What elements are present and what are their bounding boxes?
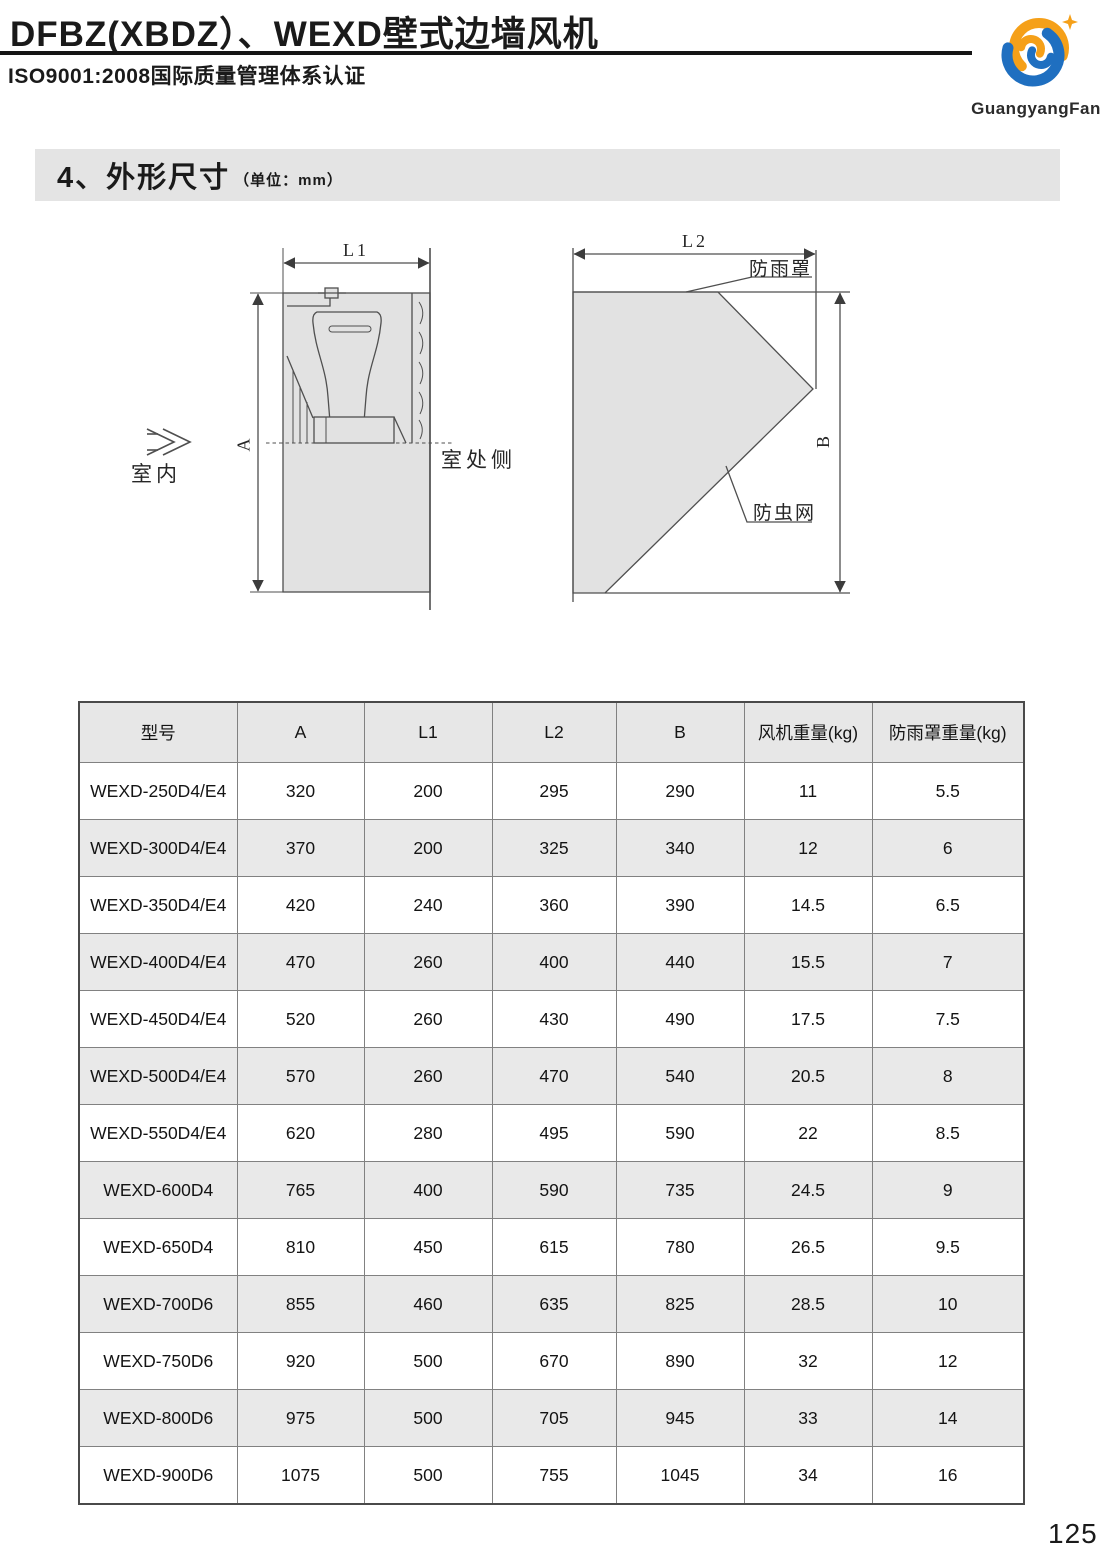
table-row: WEXD-900D6107550075510453416 [79, 1447, 1024, 1505]
value-cell: 7 [872, 934, 1024, 991]
value-cell: 22 [744, 1105, 872, 1162]
value-cell: 14.5 [744, 877, 872, 934]
model-cell: WEXD-300D4/E4 [79, 820, 237, 877]
value-cell: 590 [616, 1105, 744, 1162]
table-row: WEXD-550D4/E4620280495590228.5 [79, 1105, 1024, 1162]
value-cell: 10 [872, 1276, 1024, 1333]
value-cell: 400 [364, 1162, 492, 1219]
value-cell: 520 [237, 991, 364, 1048]
value-cell: 320 [237, 763, 364, 820]
value-cell: 735 [616, 1162, 744, 1219]
model-cell: WEXD-750D6 [79, 1333, 237, 1390]
table-row: WEXD-600D476540059073524.59 [79, 1162, 1024, 1219]
table-row: WEXD-250D4/E4320200295290115.5 [79, 763, 1024, 820]
model-cell: WEXD-500D4/E4 [79, 1048, 237, 1105]
value-cell: 17.5 [744, 991, 872, 1048]
value-cell: 26.5 [744, 1219, 872, 1276]
model-cell: WEXD-800D6 [79, 1390, 237, 1447]
value-cell: 240 [364, 877, 492, 934]
value-cell: 8.5 [872, 1105, 1024, 1162]
value-cell: 260 [364, 991, 492, 1048]
value-cell: 780 [616, 1219, 744, 1276]
value-cell: 705 [492, 1390, 616, 1447]
table-row: WEXD-700D685546063582528.510 [79, 1276, 1024, 1333]
value-cell: 34 [744, 1447, 872, 1505]
value-cell: 495 [492, 1105, 616, 1162]
value-cell: 460 [364, 1276, 492, 1333]
value-cell: 32 [744, 1333, 872, 1390]
value-cell: 260 [364, 1048, 492, 1105]
value-cell: 340 [616, 820, 744, 877]
value-cell: 570 [237, 1048, 364, 1105]
dimension-drawings [0, 220, 1119, 660]
model-cell: WEXD-350D4/E4 [79, 877, 237, 934]
catalog-page: DFBZ(XBDZ）、WEXD壁式边墙风机 ISO9001:2008国际质量管理… [0, 0, 1119, 1564]
value-cell: 670 [492, 1333, 616, 1390]
table-row: WEXD-300D4/E4370200325340126 [79, 820, 1024, 877]
col-header-cover-weight: 防雨罩重量(kg) [872, 702, 1024, 763]
col-header-fan-weight: 风机重量(kg) [744, 702, 872, 763]
col-header-a: A [237, 702, 364, 763]
model-cell: WEXD-900D6 [79, 1447, 237, 1505]
model-cell: WEXD-250D4/E4 [79, 763, 237, 820]
logo-star-icon [1062, 14, 1078, 30]
value-cell: 200 [364, 820, 492, 877]
section-unit-note: （单位：mm） [234, 169, 343, 190]
value-cell: 360 [492, 877, 616, 934]
table-row: WEXD-800D69755007059453314 [79, 1390, 1024, 1447]
airflow-arrow-icon [147, 429, 190, 455]
model-cell: WEXD-600D4 [79, 1162, 237, 1219]
dim-label-l2: L2 [665, 231, 725, 252]
value-cell: 500 [364, 1333, 492, 1390]
value-cell: 420 [237, 877, 364, 934]
value-cell: 28.5 [744, 1276, 872, 1333]
section-header-bar: 4、外形尺寸 （单位：mm） [35, 149, 1060, 201]
value-cell: 200 [364, 763, 492, 820]
dim-label-b: B [813, 433, 834, 448]
company-logo: GuangyangFan [958, 10, 1114, 119]
table-row: WEXD-450D4/E452026043049017.57.5 [79, 991, 1024, 1048]
page-number: 125 [1048, 1518, 1098, 1550]
rain-cover-label: 防雨罩 [749, 254, 812, 281]
value-cell: 755 [492, 1447, 616, 1505]
page-title: DFBZ(XBDZ）、WEXD壁式边墙风机 [10, 6, 599, 57]
value-cell: 24.5 [744, 1162, 872, 1219]
value-cell: 825 [616, 1276, 744, 1333]
value-cell: 8 [872, 1048, 1024, 1105]
value-cell: 15.5 [744, 934, 872, 991]
value-cell: 325 [492, 820, 616, 877]
value-cell: 20.5 [744, 1048, 872, 1105]
value-cell: 12 [744, 820, 872, 877]
front-view-drawing [573, 248, 850, 602]
table-row: WEXD-650D481045061578026.59.5 [79, 1219, 1024, 1276]
logo-swirl-icon [992, 10, 1080, 96]
value-cell: 33 [744, 1390, 872, 1447]
value-cell: 855 [237, 1276, 364, 1333]
value-cell: 890 [616, 1333, 744, 1390]
model-cell: WEXD-650D4 [79, 1219, 237, 1276]
iso-certification-text: ISO9001:2008国际质量管理体系认证 [8, 60, 366, 90]
dimension-spec-table: 型号 A L1 L2 B 风机重量(kg) 防雨罩重量(kg) WEXD-250… [78, 701, 1025, 1505]
value-cell: 6.5 [872, 877, 1024, 934]
value-cell: 280 [364, 1105, 492, 1162]
insect-net-label: 防虫网 [753, 498, 816, 525]
value-cell: 470 [237, 934, 364, 991]
value-cell: 635 [492, 1276, 616, 1333]
value-cell: 615 [492, 1219, 616, 1276]
logo-text: GuangyangFan [958, 99, 1114, 119]
model-cell: WEXD-700D6 [79, 1276, 237, 1333]
value-cell: 1045 [616, 1447, 744, 1505]
model-cell: WEXD-550D4/E4 [79, 1105, 237, 1162]
value-cell: 11 [744, 763, 872, 820]
value-cell: 540 [616, 1048, 744, 1105]
col-header-l2: L2 [492, 702, 616, 763]
table-body: WEXD-250D4/E4320200295290115.5WEXD-300D4… [79, 763, 1024, 1505]
dim-label-a: A [234, 436, 255, 452]
table-row: WEXD-400D4/E447026040044015.57 [79, 934, 1024, 991]
value-cell: 470 [492, 1048, 616, 1105]
table-row: WEXD-750D69205006708903212 [79, 1333, 1024, 1390]
value-cell: 810 [237, 1219, 364, 1276]
outdoor-side-label: 室处侧 [441, 444, 516, 474]
value-cell: 12 [872, 1333, 1024, 1390]
value-cell: 6 [872, 820, 1024, 877]
section-title: 4、外形尺寸 [57, 154, 230, 196]
value-cell: 920 [237, 1333, 364, 1390]
model-cell: WEXD-400D4/E4 [79, 934, 237, 991]
value-cell: 9.5 [872, 1219, 1024, 1276]
indoor-label: 室内 [131, 458, 181, 488]
value-cell: 765 [237, 1162, 364, 1219]
value-cell: 7.5 [872, 991, 1024, 1048]
value-cell: 490 [616, 991, 744, 1048]
model-cell: WEXD-450D4/E4 [79, 991, 237, 1048]
value-cell: 14 [872, 1390, 1024, 1447]
table-row: WEXD-350D4/E442024036039014.56.5 [79, 877, 1024, 934]
value-cell: 5.5 [872, 763, 1024, 820]
value-cell: 400 [492, 934, 616, 991]
value-cell: 975 [237, 1390, 364, 1447]
value-cell: 450 [364, 1219, 492, 1276]
value-cell: 430 [492, 991, 616, 1048]
table-header-row: 型号 A L1 L2 B 风机重量(kg) 防雨罩重量(kg) [79, 702, 1024, 763]
value-cell: 1075 [237, 1447, 364, 1505]
value-cell: 290 [616, 763, 744, 820]
value-cell: 590 [492, 1162, 616, 1219]
value-cell: 16 [872, 1447, 1024, 1505]
table-row: WEXD-500D4/E457026047054020.58 [79, 1048, 1024, 1105]
col-header-l1: L1 [364, 702, 492, 763]
col-header-b: B [616, 702, 744, 763]
value-cell: 370 [237, 820, 364, 877]
dim-label-l1: L1 [331, 240, 381, 261]
col-header-model: 型号 [79, 702, 237, 763]
value-cell: 390 [616, 877, 744, 934]
value-cell: 945 [616, 1390, 744, 1447]
value-cell: 295 [492, 763, 616, 820]
value-cell: 260 [364, 934, 492, 991]
value-cell: 9 [872, 1162, 1024, 1219]
side-view-drawing [147, 248, 452, 610]
value-cell: 500 [364, 1447, 492, 1505]
title-underline [0, 51, 972, 55]
value-cell: 440 [616, 934, 744, 991]
value-cell: 620 [237, 1105, 364, 1162]
value-cell: 500 [364, 1390, 492, 1447]
